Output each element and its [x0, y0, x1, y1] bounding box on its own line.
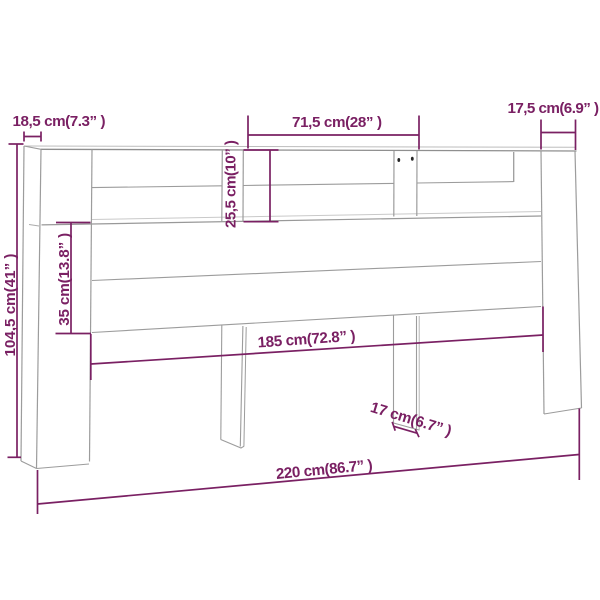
svg-text:35 cm(13.8” ): 35 cm(13.8” ) — [56, 233, 73, 326]
svg-text:25,5 cm(10” ): 25,5 cm(10” ) — [223, 140, 240, 228]
svg-text:71,5 cm(28” ): 71,5 cm(28” ) — [292, 114, 382, 131]
svg-text:104,5 cm(41” ): 104,5 cm(41” ) — [2, 254, 19, 357]
svg-text:18,5 cm(7.3” ): 18,5 cm(7.3” ) — [13, 113, 106, 130]
svg-text:17,5 cm(6.9” ): 17,5 cm(6.9” ) — [508, 100, 600, 117]
